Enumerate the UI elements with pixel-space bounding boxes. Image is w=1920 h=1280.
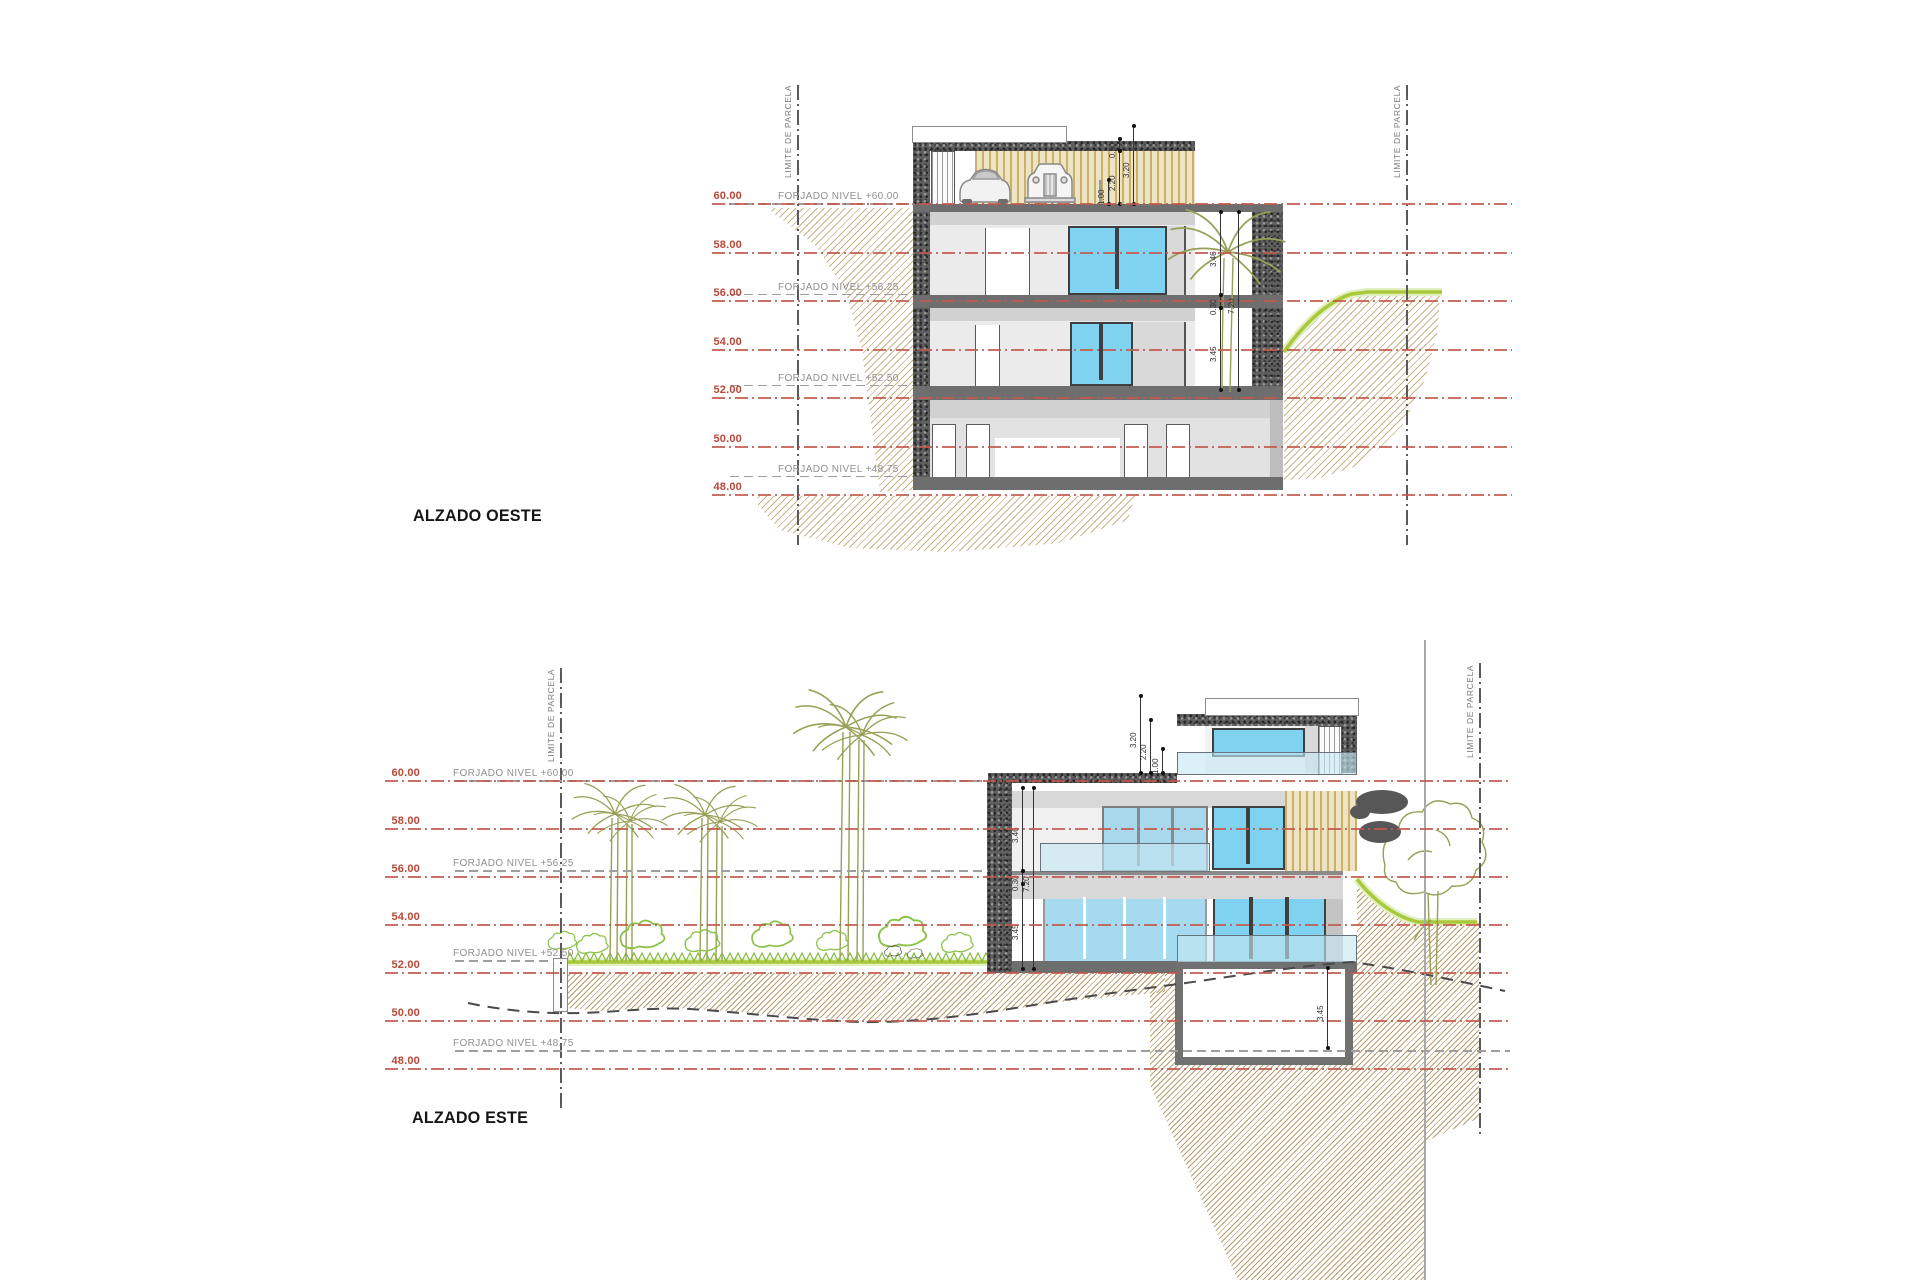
west-basement-recess: [995, 438, 1120, 477]
dimension-dot: [1032, 786, 1036, 790]
east-floor2-doors-left-m1: [1083, 897, 1086, 959]
west-floor1-beam: [930, 212, 1195, 225]
west-roof-slab: [912, 126, 1067, 143]
west-right-lower-wall: [1270, 400, 1283, 477]
east-title: ALZADO ESTE: [412, 1108, 528, 1128]
dimension-line: [1220, 212, 1221, 295]
east-parcel-label-left: LIMITE DE PARCELA: [546, 672, 556, 762]
east-section-line: [1424, 640, 1426, 1280]
dimension-dot: [1149, 718, 1153, 722]
west-floor1-right-jamb: [1167, 226, 1186, 295]
west-left-stone-wall: [913, 141, 930, 490]
level-line: [712, 397, 1512, 399]
dimension-dot: [1139, 694, 1143, 698]
level-line: [385, 876, 1510, 878]
forjado-label: FORJADO NIVEL +56.25: [778, 282, 899, 293]
dimension-line: [1327, 968, 1328, 1048]
level-label: 50.00: [378, 1007, 420, 1019]
east-floor2-doors-left-m3: [1163, 897, 1166, 959]
level-label: 52.00: [700, 384, 742, 396]
dimension-label: 1.00: [1151, 748, 1160, 774]
dimension-dot: [1139, 771, 1143, 775]
dimension-dot: [1118, 137, 1122, 141]
level-label: 54.00: [700, 336, 742, 348]
level-label: 56.00: [378, 863, 420, 875]
west-parcel-line-right: [1406, 85, 1408, 545]
east-annotations: 3.202.201.003.460.303.457.203.45FORJADO …: [0, 0, 1920, 1280]
level-label: 52.00: [378, 959, 420, 971]
dimension-label: 2.20: [1139, 734, 1148, 760]
east-floor2-doors-left-m2: [1123, 897, 1126, 959]
level-line: [385, 828, 1510, 830]
level-line: [385, 1068, 1510, 1070]
forjado-label: FORJADO NIVEL +60.00: [453, 768, 574, 779]
west-basement-door-1: [932, 424, 956, 479]
level-line: [712, 446, 1512, 448]
west-floor1-opening: [985, 228, 1030, 296]
dimension-label: 3.46: [1209, 241, 1218, 267]
dimension-dot: [1219, 306, 1223, 310]
level-label: 60.00: [700, 190, 742, 202]
dimension-label: 3.45: [1011, 914, 1020, 940]
west-floor2-beam: [930, 308, 1195, 321]
dimension-label: 3.45: [1316, 995, 1325, 1021]
level-line: [385, 972, 1510, 974]
level-line: [712, 203, 1512, 205]
forjado-label: FORJADO NIVEL +48.75: [778, 464, 899, 475]
forjado-label: FORJADO NIVEL +52.50: [453, 948, 574, 959]
west-slab-60: [913, 204, 1283, 212]
dimension-line: [1033, 788, 1034, 969]
level-label: 48.00: [700, 481, 742, 493]
forjado-line: [455, 1050, 1510, 1052]
dimension-label: 0.50: [1108, 132, 1117, 158]
dimension-dot: [1161, 771, 1165, 775]
level-label: 54.00: [378, 911, 420, 923]
dimension-label: 7.20: [1022, 866, 1031, 892]
dimension-dot: [1021, 786, 1025, 790]
west-floor2-right-wall: [1133, 322, 1186, 386]
dimension-label: 1.00: [1097, 179, 1106, 205]
dimension-line: [1119, 151, 1120, 204]
forjado-line: [730, 385, 913, 387]
level-line: [385, 924, 1510, 926]
forjado-line: [730, 476, 913, 478]
dimension-dot: [1021, 967, 1025, 971]
dimension-dot: [1237, 210, 1241, 214]
level-label: 60.00: [378, 767, 420, 779]
west-floor1-window-mullion: [1115, 228, 1119, 289]
dimension-line: [1162, 749, 1163, 773]
forjado-line: [730, 294, 913, 296]
dimension-dot: [1118, 149, 1122, 153]
dimension-dot: [1326, 966, 1330, 970]
dimension-label: 3.20: [1122, 152, 1131, 178]
west-parcel-label-right: LIMITE DE PARCELA: [1392, 88, 1402, 178]
east-parcel-line-right: [1479, 663, 1481, 1135]
dimension-dot: [1132, 124, 1136, 128]
dimension-label: 2.20: [1108, 165, 1117, 191]
dimension-dot: [1237, 388, 1241, 392]
level-label: 50.00: [700, 433, 742, 445]
east-floor1-window-right-mullion: [1246, 808, 1250, 864]
west-title: ALZADO OESTE: [413, 506, 542, 526]
west-floor3-beam: [930, 400, 1270, 418]
level-line: [385, 780, 1510, 782]
forjado-label: FORJADO NIVEL +60.00: [778, 191, 899, 202]
dimension-dot: [1219, 388, 1223, 392]
east-penthouse-slab: [1205, 698, 1359, 716]
west-garage-louver-door: [931, 151, 955, 206]
west-basement-door-3: [1124, 424, 1148, 479]
drawing-sheet: LIMITE DE PARCELA LIMITE DE PARCELA 1.00…: [0, 0, 1920, 1280]
level-label: 56.00: [700, 287, 742, 299]
east-parcel-label-right: LIMITE DE PARCELA: [1465, 668, 1475, 758]
east-balcony-railing: [1040, 843, 1210, 872]
dimension-dot: [1219, 210, 1223, 214]
dimension-line: [1022, 884, 1023, 969]
east-roof-railing: [1177, 752, 1357, 775]
level-label: 48.00: [378, 1055, 420, 1067]
level-label: 58.00: [700, 239, 742, 251]
level-line: [712, 252, 1512, 254]
dimension-dot: [1161, 747, 1165, 751]
east-lower-railing: [1177, 935, 1357, 963]
level-line: [712, 494, 1512, 496]
dimension-line: [1133, 126, 1134, 204]
west-slab-bottom: [913, 477, 1283, 490]
level-line: [712, 300, 1512, 302]
forjado-label: FORJADO NIVEL +56.25: [453, 858, 574, 869]
west-basement-door-4: [1166, 424, 1190, 479]
forjado-label: FORJADO NIVEL +48.75: [453, 1038, 574, 1049]
forjado-label: FORJADO NIVEL +52.50: [778, 373, 899, 384]
west-garage-slat-wall: [975, 151, 1195, 204]
forjado-line: [455, 960, 554, 962]
west-floor2-window-mullion: [1099, 324, 1103, 380]
east-slat-panel: [1285, 791, 1357, 871]
dimension-dot: [1032, 967, 1036, 971]
west-basement-door-2: [966, 424, 990, 479]
west-floor2-opening: [975, 325, 1000, 387]
east-elevation: LIMITE DE PARCELA LIMITE DE PARCELA 3.20…: [0, 0, 1920, 1280]
forjado-line: [455, 870, 988, 872]
west-parcel-label-left: LIMITE DE PARCELA: [783, 88, 793, 178]
dimension-dot: [1219, 293, 1223, 297]
level-line: [385, 1020, 1510, 1022]
level-line: [712, 349, 1512, 351]
dimension-label: 3.20: [1129, 722, 1138, 748]
level-label: 58.00: [378, 815, 420, 827]
